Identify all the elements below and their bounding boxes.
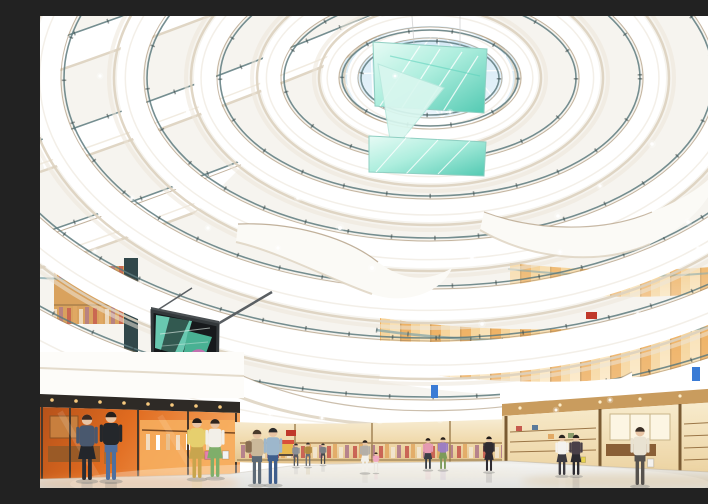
atrium-canvas [40,16,708,488]
mall-atrium-rendering: Rendering of a multi-level shopping mall… [40,16,708,488]
red-sign [586,312,597,319]
blue-banner [431,385,438,398]
blue-banner [692,367,700,381]
